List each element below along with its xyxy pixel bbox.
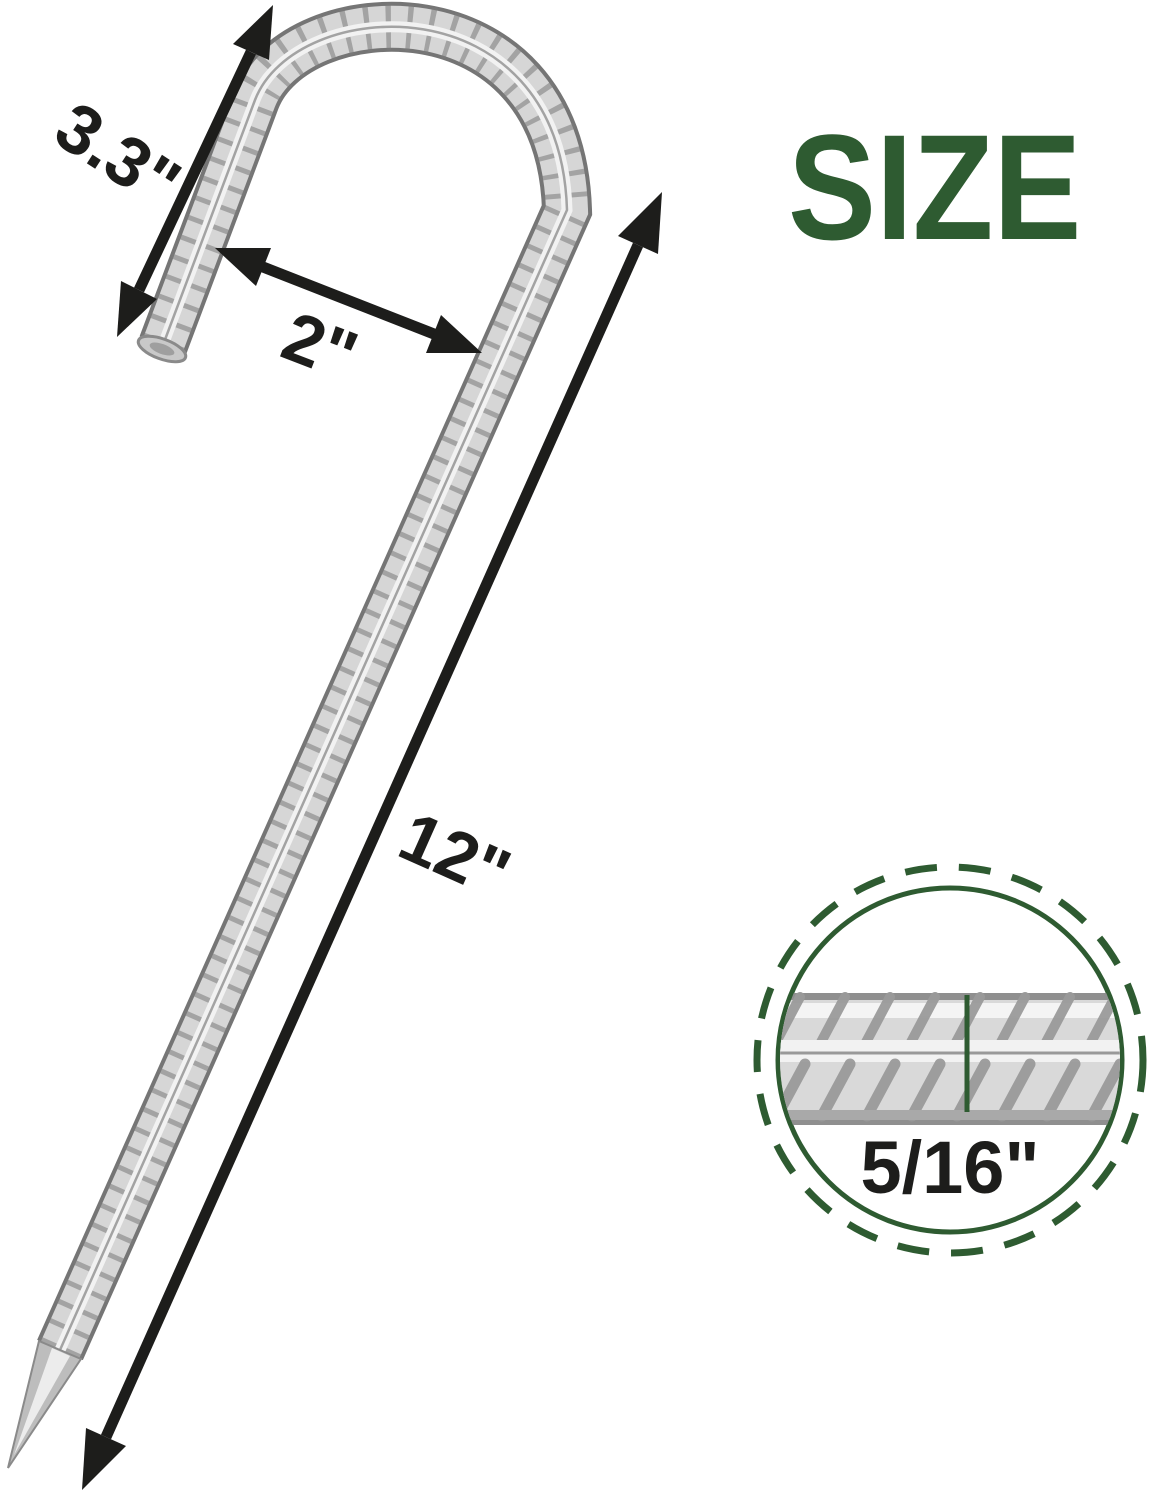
detail-rebar-section xyxy=(770,993,1135,1125)
stake-tip xyxy=(8,1341,81,1468)
diameter-label: 5/16" xyxy=(800,1127,1100,1207)
stake-ribs xyxy=(60,27,567,1350)
size-diagram: 3.3" 2" 12" SIZE 5/16" xyxy=(0,0,1150,1500)
page-title: SIZE xyxy=(788,135,1081,240)
rebar-stake xyxy=(8,27,567,1468)
